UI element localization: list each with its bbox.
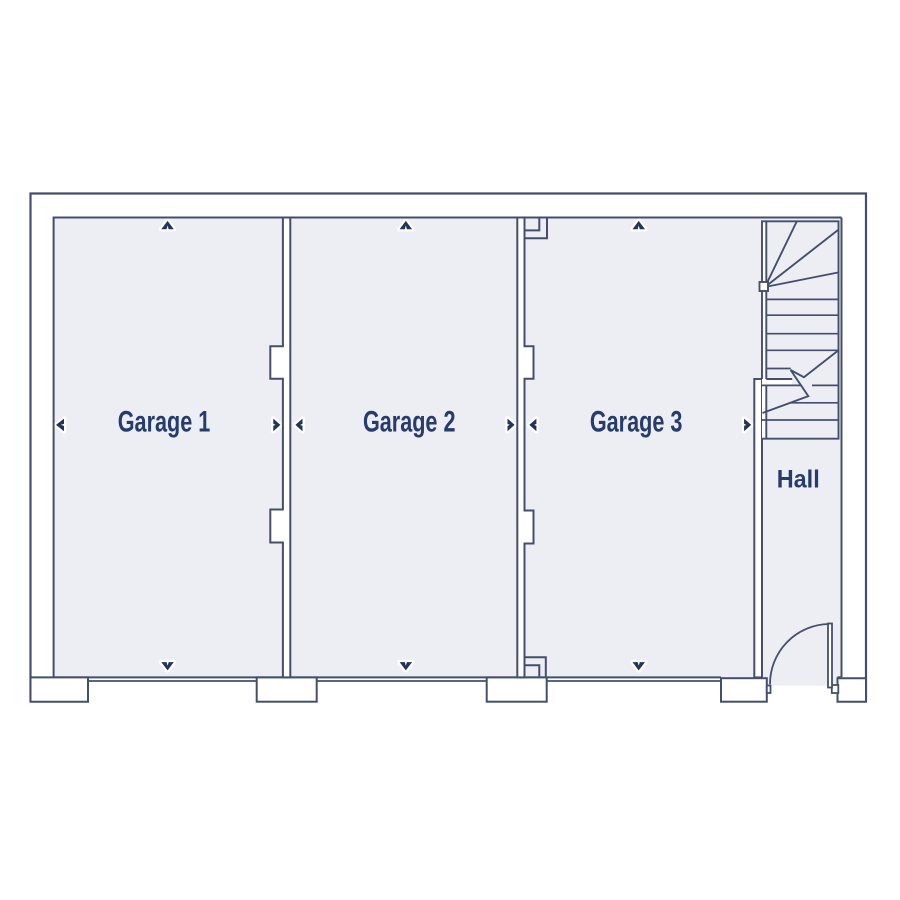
svg-text:Garage 2: Garage 2 xyxy=(363,404,456,438)
svg-text:Garage 3: Garage 3 xyxy=(590,404,683,438)
svg-text:Hall: Hall xyxy=(777,466,820,494)
svg-text:Garage 1: Garage 1 xyxy=(118,404,211,438)
